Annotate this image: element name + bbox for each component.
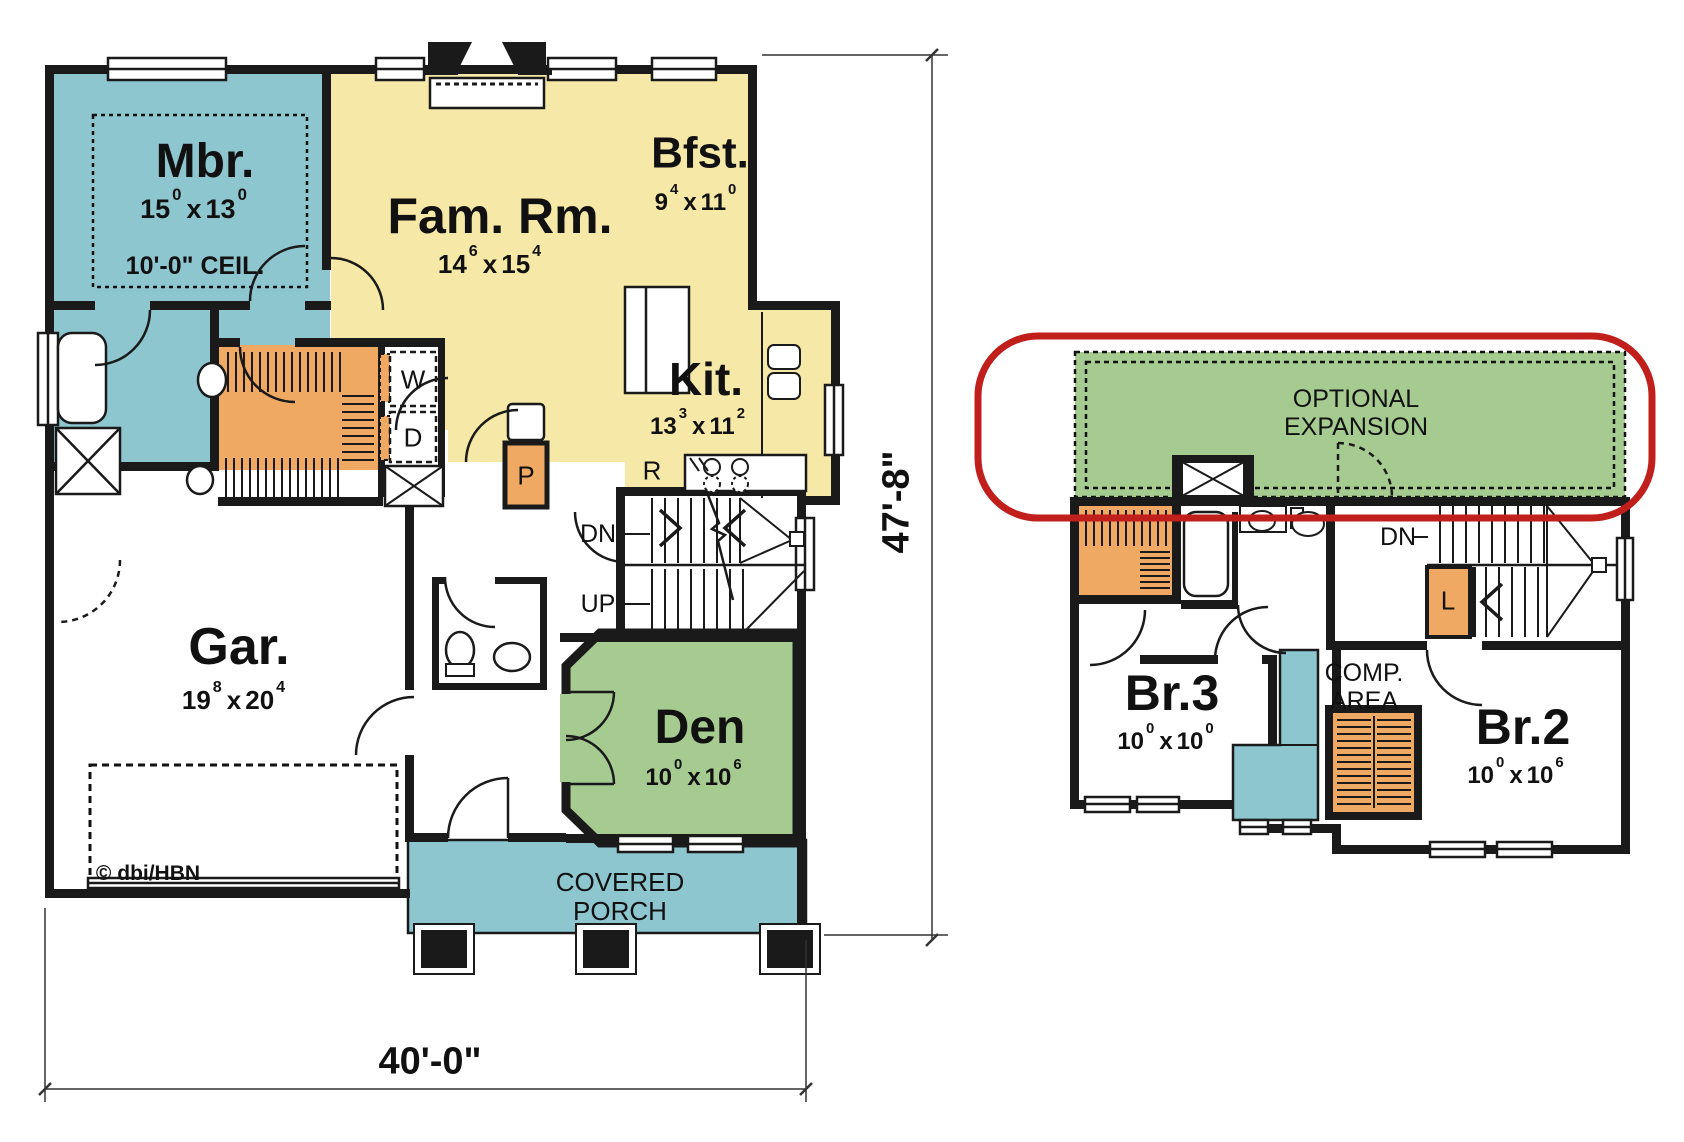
door-arc: [445, 577, 495, 627]
door-arc: [1090, 610, 1145, 665]
pantry-marker: P: [517, 461, 534, 490]
overall-depth-dimension: 47'-8": [876, 450, 919, 553]
sink-icon: [494, 643, 530, 671]
floor-plan-canvas: Mbr. 150x130 10'-0" CEIL. Fam. Rm. 146x1…: [0, 0, 1684, 1142]
breakfast-dims: 94x110: [655, 189, 742, 217]
linen-marker: L: [1441, 586, 1455, 615]
master-bedroom-dims: 150x130: [140, 194, 252, 224]
range-marker: R: [643, 456, 662, 485]
master-bedroom-label: Mbr.: [156, 135, 255, 189]
garage-dims: 198x204: [182, 685, 290, 715]
covered-porch-label: COVERED PORCH: [556, 868, 685, 926]
optional-expansion-label: OPTIONAL EXPANSION: [1284, 385, 1428, 441]
bedroom-2-label: Br.2: [1476, 699, 1571, 755]
computer-area-label: COMP. AREA: [1325, 659, 1404, 715]
toilet-icon: [187, 466, 213, 494]
breakfast-label: Bfst.: [651, 128, 749, 177]
washer-marker: W: [401, 365, 426, 394]
bathtub-icon: [1184, 512, 1228, 596]
dryer-marker: D: [404, 423, 423, 452]
garage-label: Gar.: [188, 618, 289, 676]
kitchen-label: Kit.: [669, 354, 743, 406]
stairs-down-marker-2: DN: [1380, 523, 1416, 551]
powder-room-fixtures: [446, 632, 530, 676]
bedroom-2-dims: 100x106: [1467, 762, 1568, 790]
door-arc: [1215, 607, 1268, 660]
family-room-dims: 146x154: [438, 249, 546, 279]
den-dims: 100x106: [645, 764, 746, 792]
bedroom-3-dims: 100x100: [1117, 728, 1218, 756]
sink-icon: [198, 363, 226, 397]
stairs-down-marker: DN: [580, 520, 616, 548]
family-room-label: Fam. Rm.: [387, 188, 612, 244]
first-floor-pillars: [414, 924, 820, 974]
toilet-icon: [446, 632, 474, 668]
copyright-text: © dbi/HBN: [96, 862, 200, 886]
door-arc: [448, 778, 508, 838]
stairs-first-floor: [620, 490, 806, 633]
den-label: Den: [655, 701, 746, 755]
stairs-up-marker: UP: [581, 590, 616, 618]
master-bedroom-ceiling-note: 10'-0" CEIL.: [126, 252, 265, 280]
overall-width-dimension: 40'-0": [378, 1041, 481, 1084]
kitchen-dims: 133x112: [650, 413, 750, 441]
pantry: [505, 404, 547, 507]
bedroom-3-label: Br.3: [1125, 665, 1220, 721]
bathtub-icon: [58, 333, 106, 423]
chase-box: [1172, 455, 1254, 503]
door-arc: [1427, 650, 1482, 705]
